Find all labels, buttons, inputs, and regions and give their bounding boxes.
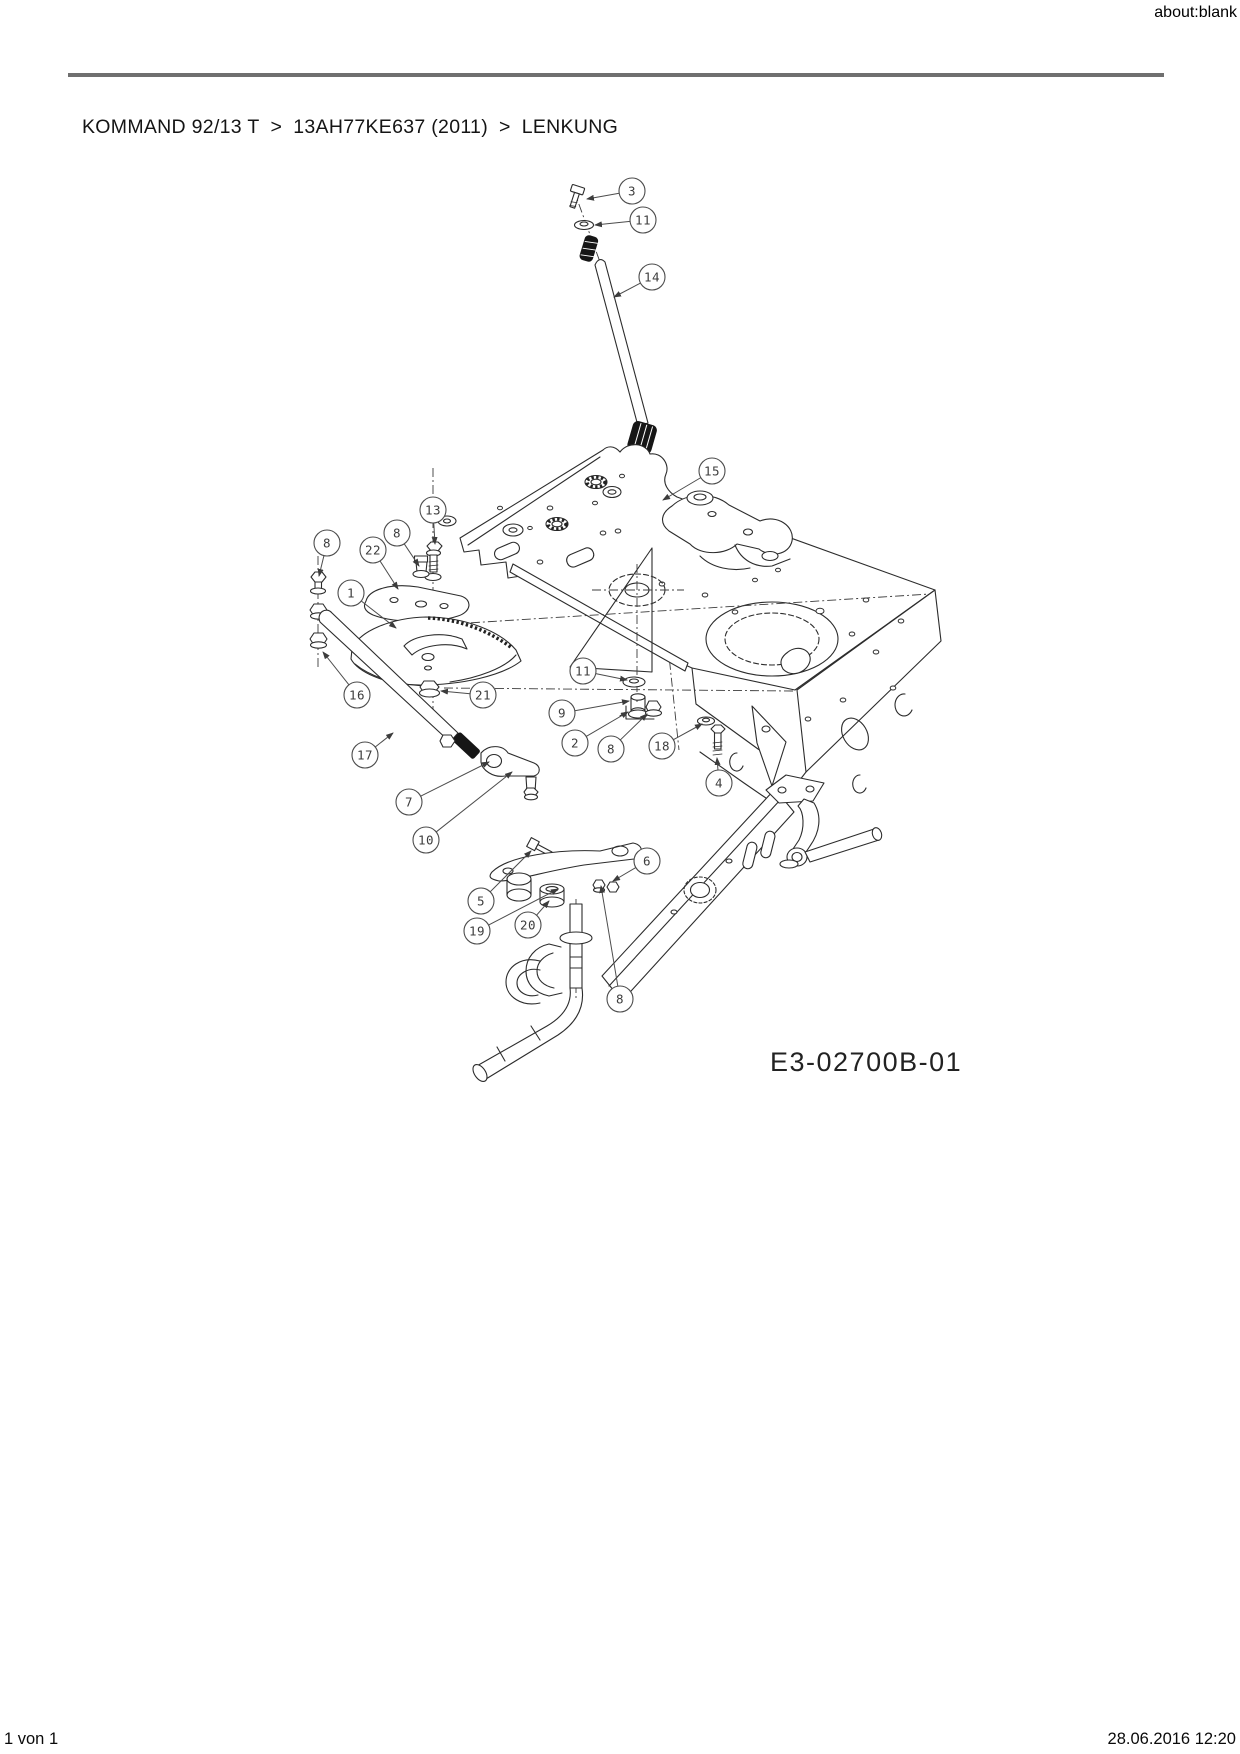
callout-13: 13 bbox=[420, 497, 446, 523]
callout-18: 18 bbox=[649, 733, 675, 759]
svg-text:21: 21 bbox=[475, 688, 491, 703]
callout-leader-3 bbox=[587, 193, 619, 199]
svg-text:18: 18 bbox=[654, 739, 670, 754]
callout-19: 19 bbox=[464, 918, 490, 944]
svg-text:16: 16 bbox=[349, 688, 365, 703]
breadcrumb-item-section: LENKUNG bbox=[522, 116, 618, 138]
header-rule bbox=[68, 73, 1164, 77]
breadcrumb-item-model: KOMMAND 92/13 T bbox=[82, 116, 260, 138]
callout-10: 10 bbox=[413, 827, 439, 853]
callout-leader-7 bbox=[421, 762, 489, 796]
callout-leader-17 bbox=[375, 733, 393, 747]
callout-8: 8 bbox=[598, 736, 624, 762]
callout-leader-11 bbox=[595, 221, 630, 225]
drawing-number: E3-02700B-01 bbox=[770, 1047, 960, 1077]
svg-text:10: 10 bbox=[418, 833, 434, 848]
callout-leader-11 bbox=[596, 674, 627, 680]
breadcrumb: KOMMAND 92/13 T>13AH77KE637 (2011)>LENKU… bbox=[82, 116, 618, 139]
callout-11: 11 bbox=[630, 207, 656, 233]
callout-6: 6 bbox=[634, 848, 660, 874]
callout-8: 8 bbox=[607, 986, 633, 1012]
svg-text:9: 9 bbox=[558, 706, 566, 721]
callout-8: 8 bbox=[314, 530, 340, 556]
callout-leader-2 bbox=[586, 712, 628, 736]
callout-leader-10 bbox=[436, 772, 512, 832]
callout-9: 9 bbox=[549, 700, 575, 726]
callout-20: 20 bbox=[515, 912, 541, 938]
svg-text:14: 14 bbox=[644, 270, 660, 285]
breadcrumb-separator: > bbox=[271, 116, 283, 138]
svg-text:13: 13 bbox=[425, 503, 441, 518]
svg-text:4: 4 bbox=[715, 776, 723, 791]
svg-text:5: 5 bbox=[477, 894, 485, 909]
callout-5: 5 bbox=[468, 888, 494, 914]
callout-leader-21 bbox=[441, 691, 470, 694]
breadcrumb-item-article: 13AH77KE637 (2011) bbox=[293, 116, 488, 138]
svg-text:19: 19 bbox=[469, 924, 485, 939]
callout-leader-22 bbox=[380, 561, 398, 589]
svg-text:15: 15 bbox=[704, 464, 720, 479]
svg-text:6: 6 bbox=[643, 854, 651, 869]
axle-art bbox=[602, 775, 883, 1001]
callout-leader-8 bbox=[404, 544, 419, 566]
callout-17: 17 bbox=[352, 742, 378, 768]
svg-text:2: 2 bbox=[571, 736, 579, 751]
svg-text:7: 7 bbox=[405, 795, 413, 810]
parts-diagram: E3-02700B-01 311141513822811621177101192… bbox=[280, 160, 960, 1110]
svg-text:11: 11 bbox=[635, 213, 651, 228]
callout-1: 1 bbox=[338, 580, 364, 606]
svg-text:1: 1 bbox=[347, 586, 355, 601]
callout-22: 22 bbox=[360, 537, 386, 563]
svg-text:8: 8 bbox=[393, 526, 401, 541]
callout-7: 7 bbox=[396, 789, 422, 815]
callout-16: 16 bbox=[344, 682, 370, 708]
print-page: about:blank KOMMAND 92/13 T>13AH77KE637 … bbox=[0, 0, 1240, 1754]
callout-3: 3 bbox=[619, 178, 645, 204]
callout-leader-14 bbox=[614, 283, 640, 297]
callout-leader-6 bbox=[613, 868, 636, 881]
footer-timestamp: 28.06.2016 12:20 bbox=[1108, 1730, 1236, 1749]
callout-11: 11 bbox=[570, 658, 596, 684]
callout-4: 4 bbox=[706, 770, 732, 796]
breadcrumb-separator: > bbox=[499, 116, 511, 138]
header-url: about:blank bbox=[1154, 4, 1237, 22]
svg-text:8: 8 bbox=[616, 992, 624, 1007]
svg-text:17: 17 bbox=[357, 748, 373, 763]
callout-14: 14 bbox=[639, 264, 665, 290]
callout-leader-16 bbox=[323, 652, 349, 685]
svg-text:22: 22 bbox=[365, 543, 381, 558]
callout-leader-18 bbox=[673, 724, 702, 740]
callout-8: 8 bbox=[384, 520, 410, 546]
callout-15: 15 bbox=[699, 458, 725, 484]
svg-text:8: 8 bbox=[607, 742, 615, 757]
callout-2: 2 bbox=[562, 730, 588, 756]
callout-leader-4 bbox=[717, 758, 718, 770]
svg-text:11: 11 bbox=[575, 664, 591, 679]
footer-page-count: 1 von 1 bbox=[4, 1730, 58, 1749]
svg-text:3: 3 bbox=[628, 184, 636, 199]
callout-21: 21 bbox=[470, 682, 496, 708]
svg-text:8: 8 bbox=[323, 536, 331, 551]
svg-text:20: 20 bbox=[520, 918, 536, 933]
callout-leader-13 bbox=[434, 523, 435, 544]
callout-leader-9 bbox=[575, 701, 629, 711]
